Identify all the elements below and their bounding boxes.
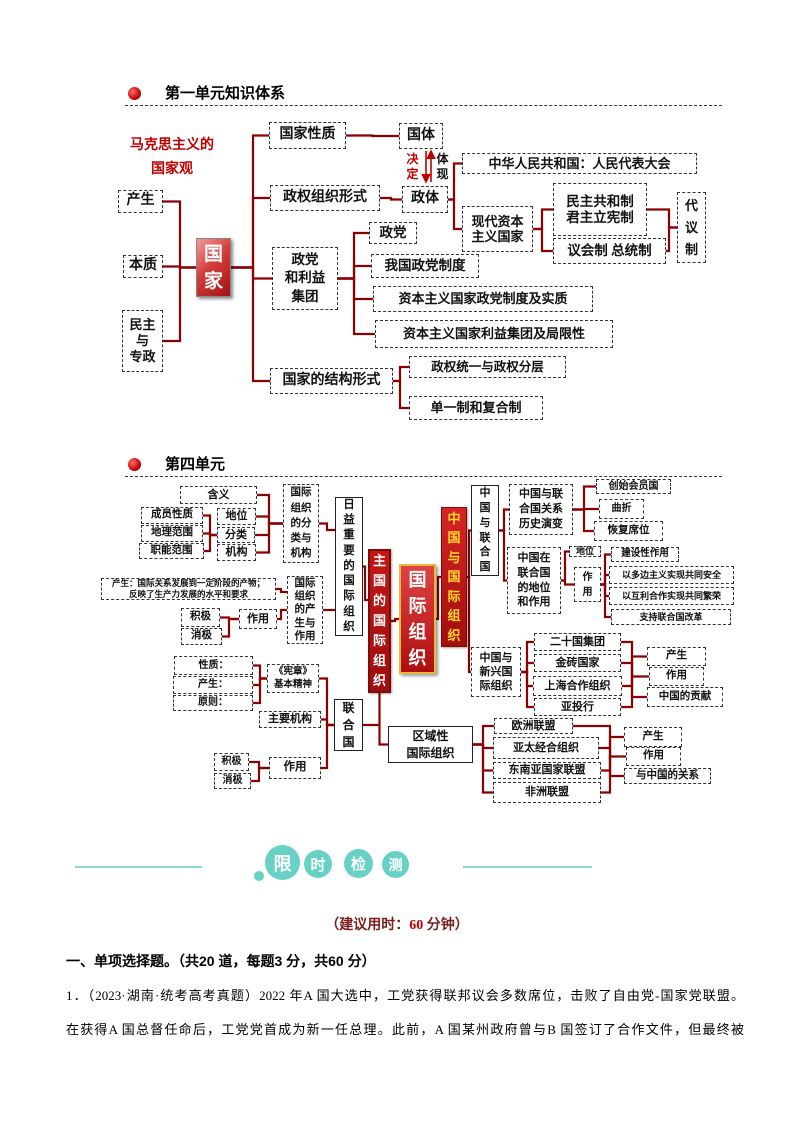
section2-title: 第四单元	[165, 453, 225, 474]
node-zgygjzz: 中 国 与 国 际 组 织	[441, 507, 467, 647]
node-jiji2: 积极	[214, 753, 249, 771]
node-cs_long: 产生：国际关系发展到一定阶段的产物； 反映了生产力发展的水平和要求	[101, 578, 276, 600]
section2-divider	[125, 476, 722, 477]
section1-bullet-icon	[128, 87, 141, 100]
node-cshyg: 创始会员国	[596, 479, 671, 494]
node-xingzhi: 性质：	[174, 656, 253, 675]
node-ytouh: 亚投行	[534, 698, 621, 716]
node-cyxz: 成员性质	[141, 507, 203, 524]
question-section-header: 一、单项选择题。（共20 道，每题3 分，共60 分）	[66, 951, 746, 971]
node-znfw: 职能范围	[139, 543, 204, 559]
node-hanyi: 含义	[180, 486, 257, 504]
badge-char-1: 限	[265, 845, 300, 880]
node-oumeng: 欧洲联盟	[494, 718, 573, 734]
node-zgyxx: 中国与 新兴国 际组织	[471, 647, 521, 697]
node-zuoyong2: 作用	[269, 757, 321, 779]
badge-strip-line	[463, 866, 592, 868]
node-zuoyong_l: 作用	[239, 609, 277, 629]
node-zggx: 中国的贡献	[647, 687, 723, 707]
node-gjxz: 国家性质	[269, 122, 346, 149]
node-jigou: 机构	[217, 544, 256, 561]
node-yhlhz: 以互利合作实现共同繁荣	[609, 587, 734, 605]
node-zgzlhg: 中国在 联合国 的地位 和作用	[507, 547, 561, 614]
node-cs_r2: 产生	[624, 727, 682, 747]
node-xiandai: 现代资本 主义国家	[462, 206, 533, 252]
node-jueding: 决 定	[404, 151, 421, 183]
node-cszy: 国际 组织 的产 生与 作用	[287, 576, 323, 644]
node-zclhg: 支持联合国改革	[611, 609, 731, 625]
node-feimeng: 非洲联盟	[493, 782, 601, 803]
node-jsxzy: 建设性作用	[611, 547, 679, 562]
question-line-2: 在获得A 国总督任命后，工党党首成为新一任总理。此前，A 国某州政府曾与B 国签…	[66, 1019, 744, 1038]
node-tixian: 体 现	[434, 151, 451, 183]
node-fenlei: 分类	[217, 527, 255, 543]
node-zy_r2: 作用	[626, 747, 681, 766]
node-guojia: 国 家	[196, 238, 231, 297]
node-jz: 金砖国家	[534, 654, 621, 672]
node-minzhugonghe: 民主共和制 君主立宪制	[553, 183, 647, 236]
node-xiaoji1: 消极	[181, 628, 222, 645]
section1-title: 第一单元知识体系	[165, 82, 285, 103]
badge-char-3: 检	[344, 849, 373, 878]
badge-dot-icon	[254, 871, 264, 881]
node-cs_r1: 产生	[647, 647, 706, 666]
badge-strip-line	[75, 866, 202, 868]
page: 第一单元知识体系 第四单元 （建议用时：60 分钟） 一、单项选择题。（共20 …	[0, 0, 794, 1123]
node-xianzhang: 《宪章》 基本精神	[267, 664, 319, 693]
suggested-time-prefix: （建议用时：	[325, 918, 409, 933]
node-zdlyjt: 政党 和利益 集团	[272, 247, 338, 310]
node-riyi: 日 益 重 要 的 国 际 组 织	[335, 497, 363, 636]
node-shhz: 上海合作组织	[533, 676, 622, 696]
node-zhengti: 政体	[402, 186, 448, 213]
node-gxls: 中国与联 合国关系 历史演变	[509, 484, 573, 535]
node-diwei_l: 地位	[217, 508, 256, 525]
node-hfxw: 恢复席位	[594, 521, 663, 541]
node-zqty: 政权统一与政权分层	[409, 356, 566, 378]
node-dyz: 单一制和复合制	[409, 396, 543, 420]
suggested-time-minutes: 60	[409, 918, 423, 933]
node-benzhi: 本质	[123, 255, 163, 278]
node-esg: 二十国集团	[534, 633, 621, 651]
node-fljg: 国际 组织 的分 类与 机构	[283, 484, 319, 563]
node-lhg: 联 合 国	[334, 699, 363, 751]
node-gjzz: 国 际 组 织	[399, 564, 436, 674]
node-chansheng1: 产生	[118, 190, 163, 213]
node-minzhu: 民主 与 专政	[122, 310, 163, 372]
node-zqzzxs: 政权组织形式	[270, 185, 380, 211]
node-quzhe: 曲折	[599, 499, 644, 519]
node-mk: 马克思主义的 国家观	[120, 136, 224, 180]
node-yataijh: 亚太经合组织	[493, 737, 599, 759]
node-ydbzy: 以多边主义实现共同安全	[609, 566, 734, 584]
node-xiaoji2: 消极	[214, 773, 251, 789]
node-wgzd: 我国政党制度	[371, 254, 479, 278]
node-yzgdgx: 与中国的关系	[624, 768, 711, 784]
section1-divider	[125, 105, 722, 106]
node-quyu: 区域性 国际组织	[388, 726, 473, 763]
node-jiji1: 积极	[181, 608, 220, 627]
suggested-time: （建议用时：60 分钟）	[0, 914, 794, 934]
node-zhuguo: 主 国 的 国 际 组 织	[368, 549, 391, 693]
node-jgxs: 国家的结构形式	[270, 368, 393, 394]
badge-char-2: 时	[304, 850, 332, 878]
node-yuanze: 原则：	[173, 695, 253, 711]
node-zuoyong_r: 作 用	[574, 567, 601, 602]
node-zhonghua: 中华人民共和国：人民代表大会	[462, 153, 697, 174]
node-daiyizhi: 代 议 制	[677, 192, 706, 263]
node-dlfw: 地理范围	[141, 525, 203, 542]
node-zbzy1: 资本主义国家政党制度及实质	[373, 286, 593, 312]
node-zy_r1: 作用	[649, 667, 704, 686]
node-dongmeng: 东南亚国家联盟	[493, 762, 601, 779]
node-yihui: 议会制 总统制	[553, 238, 666, 264]
question-line-1: 1．（2023·湖南·统考高考真题）2022 年A 国大选中，工党获得联邦议会多…	[66, 985, 744, 1004]
node-zyjg: 主要机构	[259, 711, 321, 728]
node-chansheng2: 产生：	[173, 676, 253, 694]
node-zhengdang: 政党	[369, 222, 417, 244]
badge-char-4: 测	[382, 851, 409, 878]
node-guoti: 国体	[399, 123, 443, 149]
suggested-time-suffix: 分钟）	[423, 918, 469, 933]
node-diwei_r: 地位	[569, 546, 601, 557]
section2-bullet-icon	[128, 458, 141, 471]
node-zbzy2: 资本主义国家利益集团及局限性	[375, 320, 613, 348]
node-zgylhg: 中 国 与 联 合 国	[471, 485, 499, 576]
